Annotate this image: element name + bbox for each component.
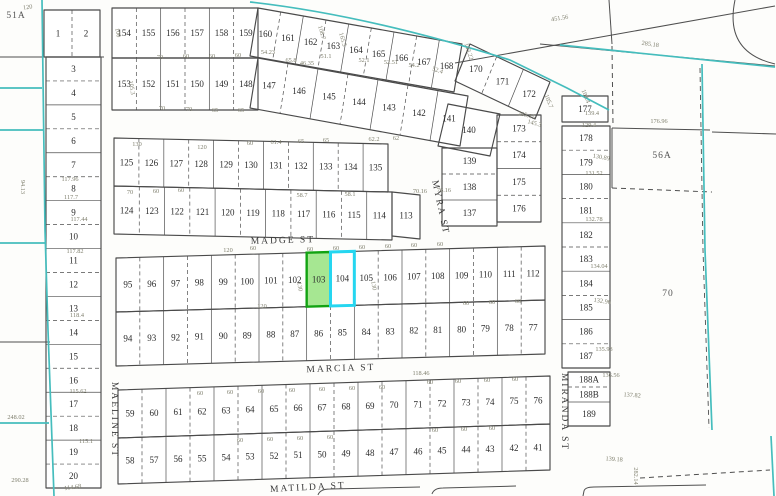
dimension-label: 176.96 [650,118,667,125]
dimension-label: 70 [159,105,165,112]
dimension-label: 290.28 [11,477,28,484]
dimension-label: 60 [512,376,518,383]
lot-number-75: 75 [510,396,520,406]
lot-number-69: 69 [366,401,376,411]
lot-number-20: 20 [69,471,79,481]
lot-number-134: 134 [344,162,358,172]
lot-number-41: 41 [534,442,543,452]
dimension-label: 118.4 [70,312,85,319]
dimension-label: 60 [297,435,303,442]
dimension-label: 134.04 [590,263,608,270]
lot-number-3: 3 [71,64,76,74]
dimension-label: 62 [393,135,399,142]
dimension-label: 248.02 [7,414,24,421]
lot-number-133: 133 [319,162,333,172]
lot-number-119: 119 [246,208,260,218]
lot-number-1: 1 [56,29,61,39]
lot-number-118: 118 [272,209,286,219]
street-label-matilda-st: MATILDA ST [270,481,346,495]
lot-number-12: 12 [69,279,78,289]
lot-number-116: 116 [322,210,336,220]
lot-number-185: 185 [579,303,593,313]
street-label-marcia-st: MARCIA ST [306,363,375,375]
lot-number-67: 67 [318,402,328,412]
dimension-label: 60 [515,298,521,305]
lot-number-72: 72 [438,399,447,409]
dimension-label: 105.7 [542,94,554,110]
lot-number-165: 165 [372,49,386,59]
lot-number-121: 121 [196,207,210,217]
dimension-label: 60 [319,386,325,393]
lot-number-175: 175 [512,177,526,187]
dimension-label: 139.18 [605,455,623,463]
dimension-label: 60 [437,241,443,248]
lot-number-5: 5 [71,112,76,122]
dimension-label: 76.16 [437,187,451,194]
lot-number-157: 157 [190,28,204,38]
lot-number-90: 90 [219,331,229,341]
lot-number-141: 141 [442,113,456,123]
lot-number-19: 19 [69,447,79,457]
lot-number-150: 150 [190,79,204,89]
lot-number-47: 47 [390,447,400,457]
lot-number-11: 11 [69,256,78,266]
dimension-label: 65 [212,107,218,114]
lot-number-135: 135 [369,163,383,173]
lot-number-130: 130 [244,160,258,170]
lot-number-48: 48 [366,448,376,458]
dimension-label: 60 [461,426,467,433]
dimension-label: 70.16 [413,188,427,195]
lot-number-82: 82 [409,326,418,336]
lot-number-83: 83 [386,326,396,336]
dimension-label: 60 [250,245,256,252]
map-viewport: 1234567891011121314151617181920154155156… [0,0,776,496]
lot-number-104: 104 [336,274,350,284]
boundary-line [612,46,613,126]
dimension-label: 129.4 [582,122,597,129]
boundary-line [609,0,612,44]
lot-number-79: 79 [481,324,491,334]
lot-number-58: 58 [126,456,136,466]
lot-number-63: 63 [222,406,232,416]
lot-number-55: 55 [198,453,208,463]
lot-number-170: 170 [469,64,483,74]
parcel-label-70: 70 [662,289,674,299]
lot-number-54: 54 [222,453,232,463]
lot-number-43: 43 [486,444,496,454]
lot-number-161: 161 [281,33,295,43]
dimension-label: 117.82 [66,248,83,255]
dimension-label: 60 [289,387,295,394]
dimension-label: 60 [183,53,189,60]
lot-number-182: 182 [579,230,593,240]
dimension-label: 62.2 [368,136,379,143]
lot-number-109: 109 [455,270,469,280]
dimension-label: 120 [23,3,33,11]
dimension-label: 58.7 [296,192,307,199]
dimension-label: 60 [153,188,159,195]
dimension-label: 114.68 [64,483,82,492]
lot-number-89: 89 [243,330,253,340]
dimension-label: 60 [359,244,365,251]
lot-number-52: 52 [270,451,279,461]
lot-number-114: 114 [373,211,387,221]
lot-number-108: 108 [431,271,445,281]
survey-line [560,45,775,67]
dimension-label: 65 [323,137,329,144]
lot-number-137: 137 [463,208,477,218]
lot-number-179: 179 [579,157,593,167]
dimension-label: 282.14 [632,467,639,485]
lot-number-61: 61 [174,407,183,417]
dimension-label: 60 [258,388,264,395]
parcel-label-51a: 51A [6,11,25,21]
dimension-label: 60 [178,187,184,194]
lot-number-68: 68 [342,402,352,412]
lot-number-66: 66 [294,403,304,413]
dimension-label: 60 [327,434,333,441]
dimension-label: 94.13 [19,180,26,194]
lot-number-107: 107 [407,272,421,282]
dimension-label: 46.35 [300,60,314,67]
lot-number-15: 15 [69,351,79,361]
lot-number-163: 163 [327,41,341,51]
lot-number-126: 126 [145,158,159,168]
lot-number-146: 146 [292,86,306,96]
lot-number-162: 162 [304,37,318,47]
lot-number-111: 111 [503,269,516,279]
dimension-label: 60 [379,384,385,391]
dimension-label: 120 [257,303,266,310]
dimension-label: 65.8 [285,57,296,64]
lot-number-106: 106 [383,272,397,282]
lot-number-140: 140 [462,125,476,135]
lot-number-131: 131 [269,161,283,171]
lot-number-86: 86 [314,328,324,338]
dimension-label: 54.23 [261,49,275,56]
dimension-label: 60 [247,140,253,147]
dimension-label: 60 [209,53,215,60]
dimension-label: 285.18 [641,40,659,49]
dimension-label: 115.1 [79,438,93,445]
lot-number-44: 44 [462,445,472,455]
lot-number-158: 158 [215,28,229,38]
lot-number-127: 127 [170,158,184,168]
dimension-label: 70 [127,189,133,196]
boundary-line [583,485,706,496]
lot-number-98: 98 [195,278,205,288]
survey-line [771,436,774,496]
dimension-label: 65 [298,138,304,145]
dimension-label: 60 [227,389,233,396]
street-label-miranda-st: MIRANDA ST [559,373,569,451]
dimension-label: 61.4 [270,139,282,146]
lot-number-152: 152 [142,79,156,89]
lot-number-113: 113 [399,211,413,221]
lot-number-139: 139 [463,156,477,166]
lot-number-16: 16 [69,375,79,385]
lot-number-60: 60 [150,408,160,418]
lot-number-142: 142 [412,108,426,118]
boundary-line [612,188,712,192]
lot-number-62: 62 [198,406,207,416]
parcel-label-56a: 56A [652,151,671,161]
dimension-label: 54.2 [408,62,419,69]
dimension-label: 60 [385,243,391,250]
lot-number-50: 50 [318,449,328,459]
dimension-label: 70 [157,54,163,61]
lot-number-151: 151 [166,79,180,89]
lot-number-8: 8 [71,184,76,194]
dimension-label: 120 [197,144,206,151]
lot-number-117: 117 [297,209,311,219]
lot-number-14: 14 [69,327,79,337]
lot-number-94: 94 [123,334,133,344]
dimension-label: 130 [132,141,141,148]
boundary-line [432,486,516,494]
dimension-label: 451.56 [551,14,569,24]
dimension-label: 115.62 [69,388,86,395]
lot-number-101: 101 [264,276,278,286]
dimension-label: 117.7 [64,194,78,201]
lot-number-143: 143 [382,102,396,112]
lot-number-7: 7 [71,160,76,170]
lot-number-4: 4 [71,88,76,98]
dimension-label: 60 [349,385,355,392]
lot-number-188A: 188A [579,375,600,385]
dimension-label: 60 [333,245,339,252]
lot-number-78: 78 [505,323,515,333]
dimension-label: 60 [489,299,495,306]
dimension-label: 51.1 [320,53,331,60]
lot-number-173: 173 [512,123,526,133]
dimension-label: 131.52 [585,170,602,177]
dimension-label: 117.44 [70,216,88,223]
lot-number-45: 45 [438,446,448,456]
lot-number-91: 91 [195,332,204,342]
lot-number-56: 56 [174,454,184,464]
dimension-label: 137.82 [623,391,641,399]
lot-number-148: 148 [239,79,253,89]
lot-number-176: 176 [512,204,526,214]
dimension-label: 60 [267,436,273,443]
lot-number-84: 84 [362,327,372,337]
lot-number-181: 181 [579,206,593,216]
lot-number-120: 120 [221,207,235,217]
dimension-label: 52.51 [384,59,398,66]
dimension-label: 120 [223,247,232,254]
lot-number-57: 57 [150,455,160,465]
lot-number-46: 46 [414,446,424,456]
lot-number-180: 180 [579,182,593,192]
lot-number-112: 112 [526,268,539,278]
lot-number-96: 96 [147,279,157,289]
lot-number-149: 149 [215,79,229,89]
lot-number-138: 138 [463,182,477,192]
dimension-label: 60 [235,52,241,59]
lot-number-59: 59 [126,409,136,419]
lot-number-65: 65 [270,404,280,414]
lot-number-115: 115 [348,210,362,220]
lot-number-122: 122 [170,206,184,216]
lot-number-64: 64 [246,405,256,415]
lot-number-42: 42 [510,443,519,453]
boundary-line [455,6,775,63]
dimension-label: 117.96 [61,176,78,183]
dimension-label: 60 [463,300,469,307]
boundary-line [712,132,776,134]
dimension-label: 60 [455,378,461,385]
lot-number-71: 71 [414,399,423,409]
dimension-label: 60 [411,242,417,249]
dimension-label: 60 [197,390,203,397]
dimension-label: 60 [237,437,243,444]
lot-number-172: 172 [522,89,536,99]
dimension-label: 60 [484,377,490,384]
lot-number-73: 73 [462,398,472,408]
dimension-label: 70 [186,106,192,113]
lot-number-186: 186 [579,327,593,337]
lot-number-178: 178 [579,133,593,143]
lot-number-125: 125 [120,157,134,167]
dimension-label: 135.93 [595,346,612,353]
street-label-madge-st: MADGE ST [251,235,316,247]
lot-number-155: 155 [142,28,156,38]
plat-parcel-map: 1234567891011121314151617181920154155156… [0,0,776,496]
lot-number-97: 97 [171,278,181,288]
boundary-line [612,128,710,130]
lot-number-49: 49 [342,449,352,459]
lot-number-174: 174 [512,150,526,160]
lot-number-17: 17 [69,399,79,409]
dimension-label: 60 [489,425,495,432]
dimension-label: 139.4 [585,110,600,117]
lot-number-128: 128 [194,159,208,169]
lot-number-80: 80 [457,324,467,334]
lot-number-100: 100 [240,276,254,286]
lot-number-132: 132 [294,161,308,171]
lot-number-103: 103 [312,274,326,284]
dimension-label: 60 [427,379,433,386]
lot-number-6: 6 [71,136,76,146]
lot-number-147: 147 [262,81,276,91]
lot-number-110: 110 [479,270,493,280]
lot-number-92: 92 [171,332,180,342]
lot-number-85: 85 [338,328,348,338]
lot-number-123: 123 [145,206,159,216]
boundary-line [640,470,770,478]
lot-number-160: 160 [259,29,273,39]
lot-number-156: 156 [166,28,180,38]
lot-number-99: 99 [219,277,229,287]
lot-number-145: 145 [322,92,336,102]
dimension-label: 52.1 [358,57,369,64]
dimension-label: 60 [307,246,313,253]
lot-number-88: 88 [266,330,276,340]
lot-number-77: 77 [529,322,539,332]
lot-number-129: 129 [219,159,233,169]
dimension-label: 65 [238,107,244,114]
lot-number-188B: 188B [579,390,599,400]
lot-number-76: 76 [534,395,544,405]
lot-number-95: 95 [123,280,133,290]
dimension-label: 58.1 [344,191,355,198]
lot-number-10: 10 [69,232,79,242]
street-label-maeline-st: MAELINE ST [109,382,119,458]
dimension-label: 118.46 [412,370,429,377]
lot-number-18: 18 [69,423,79,433]
lot-number-159: 159 [239,28,253,38]
dimension-label: 136.56 [602,372,619,379]
lot-number-124: 124 [120,205,134,215]
lot-number-53: 53 [246,452,256,462]
lot-number-144: 144 [352,97,366,107]
lot-number-74: 74 [486,397,496,407]
lot-number-51: 51 [294,450,303,460]
lot-number-70: 70 [390,400,400,410]
lot-number-2: 2 [84,29,89,39]
lot-number-87: 87 [290,329,300,339]
lot-number-171: 171 [496,77,510,87]
dimension-label: 60 [432,427,438,434]
lot-number-93: 93 [147,333,157,343]
lot-number-81: 81 [433,325,442,335]
lot-number-184: 184 [579,278,593,288]
lot-number-164: 164 [349,45,363,55]
lot-number-187: 187 [579,351,593,361]
dimension-label: 132.78 [585,216,602,223]
lot-number-189: 189 [582,409,596,419]
